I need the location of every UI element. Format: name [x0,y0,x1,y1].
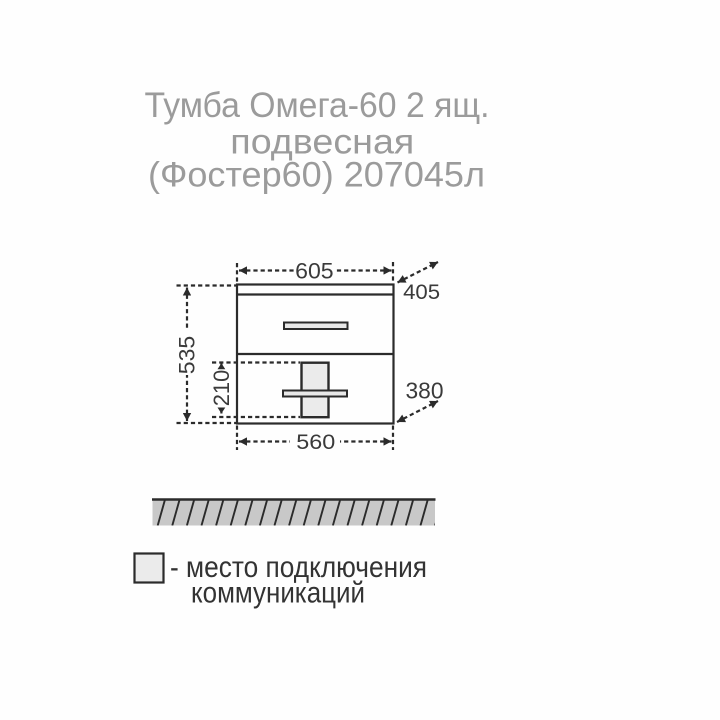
svg-text:605: 605 [295,259,334,284]
svg-text:(Фостер60) 207045л: (Фостер60) 207045л [148,156,485,195]
svg-text:коммуникаций: коммуникаций [191,577,365,610]
svg-text:405: 405 [403,281,440,304]
svg-text:380: 380 [406,378,444,404]
svg-text:Тумба Омега-60 2 ящ.: Тумба Омега-60 2 ящ. [145,86,490,125]
svg-text:535: 535 [175,336,200,375]
svg-text:210: 210 [209,370,234,407]
svg-text:560: 560 [296,431,335,454]
